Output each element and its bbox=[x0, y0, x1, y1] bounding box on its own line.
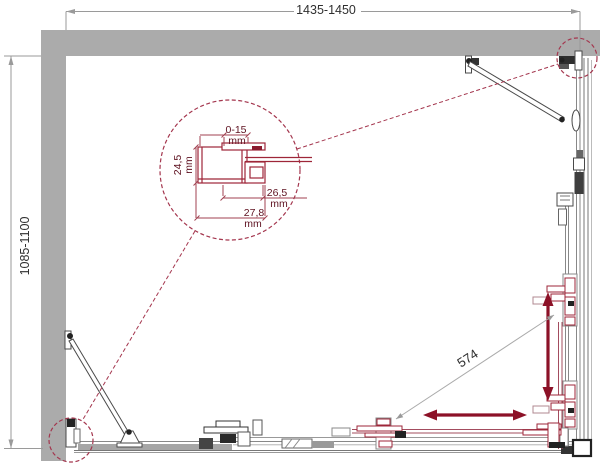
clamp-unit-label: mm bbox=[270, 198, 288, 210]
brace-bar bbox=[468, 62, 564, 123]
left-wall bbox=[41, 30, 66, 461]
depth-arrow-bottom bbox=[9, 440, 14, 449]
brace-bar bbox=[69, 339, 129, 435]
depth-dimension-label: 1085-1100 bbox=[18, 217, 32, 276]
right-lower-carriage bbox=[533, 381, 577, 429]
opening-dimension-label: 574 bbox=[454, 346, 480, 370]
dimension-opening: 574 bbox=[396, 315, 554, 419]
brace-washer bbox=[572, 110, 580, 131]
dimension-depth: 1085-1100 bbox=[4, 56, 43, 449]
width-dimension-label: 1435-1450 bbox=[296, 3, 356, 17]
opening-dim-line bbox=[396, 315, 554, 419]
profile-unit-label: mm bbox=[244, 218, 262, 230]
width-arrow-right bbox=[571, 9, 580, 14]
leader-line-bottom-left bbox=[82, 231, 195, 421]
top-wall bbox=[41, 30, 600, 56]
width-arrow-left bbox=[66, 9, 75, 14]
bottom-right-carriage bbox=[523, 423, 568, 448]
adjustment-unit-label: mm bbox=[228, 135, 246, 147]
technical-drawing-page: 1435-1450 1085-1100 bbox=[0, 0, 600, 465]
depth-arrow-top bbox=[9, 56, 14, 65]
technical-drawing: 1435-1450 1085-1100 bbox=[0, 0, 600, 465]
bottom-rail bbox=[66, 419, 591, 453]
door-knob bbox=[253, 420, 262, 435]
right-upper-carriage bbox=[533, 274, 577, 326]
bottom-left-wall-profile bbox=[66, 419, 80, 447]
vertical-slide-arrow bbox=[543, 292, 554, 401]
detail-callout: 0-15 mm 24,5 mm 26,5 mm 27,8 mm bbox=[49, 38, 597, 462]
horizontal-slide-arrow bbox=[423, 410, 527, 421]
leader-line-top-right bbox=[297, 64, 558, 149]
depth-unit-label: mm bbox=[183, 156, 195, 174]
adjustment-arrows bbox=[423, 292, 554, 421]
profile-cross-section bbox=[198, 143, 312, 183]
